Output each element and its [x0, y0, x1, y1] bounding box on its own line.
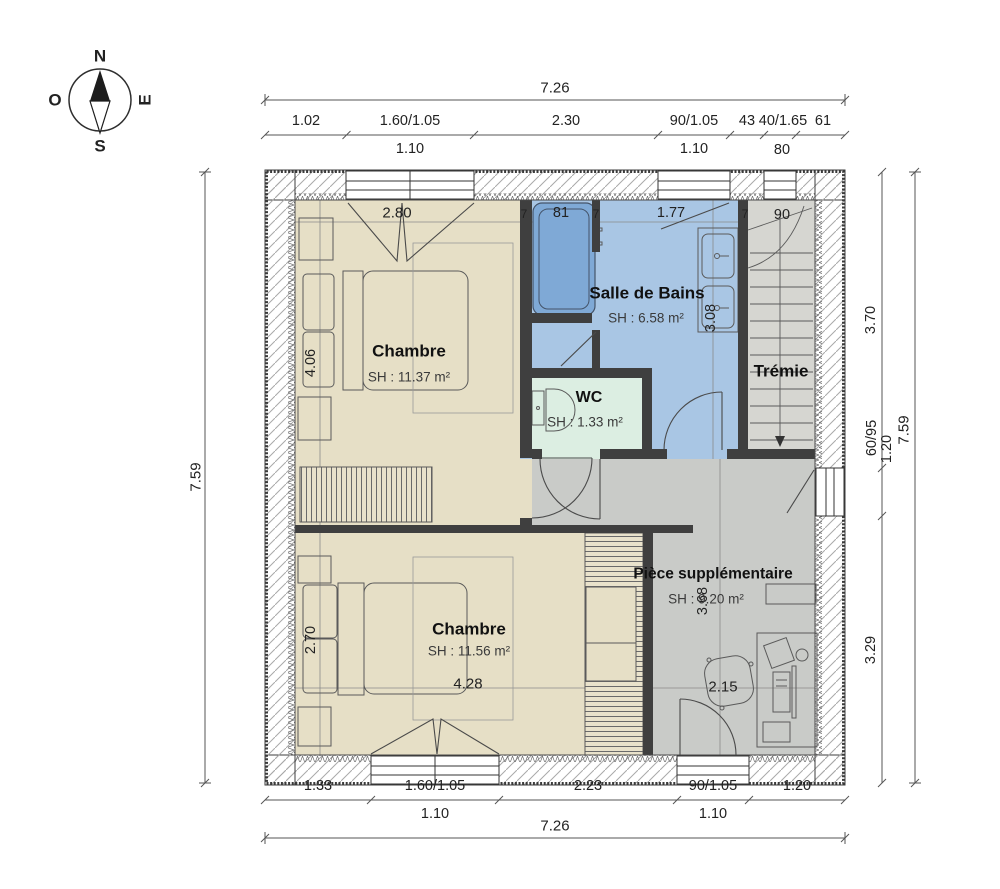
dim-top-2b: 1.10: [396, 142, 424, 157]
dim-left-total: 7.59: [189, 462, 204, 491]
shelf-icon: [300, 467, 432, 522]
dim-top-6: 40/1.65: [759, 114, 807, 129]
dim-right-2: 60/95: [865, 420, 880, 456]
room-bath-area: SH : 6.58 m²: [608, 311, 684, 325]
room-wc-area: SH : 1.33 m²: [547, 415, 623, 429]
dim-chambre2-height: 2.70: [304, 626, 319, 654]
room-chambre1-area: SH : 11.37 m²: [368, 370, 450, 384]
compass-icon: [69, 69, 131, 133]
dim-right-2b: 1.20: [880, 435, 895, 463]
room-chambre2-area: SH : 11.56 m²: [428, 644, 510, 658]
dim-right-total: 7.59: [897, 415, 912, 444]
dim-bottom-5: 1.20: [783, 779, 811, 794]
dim-bottom-3: 2.23: [574, 779, 602, 794]
floor-plan-drawing: [0, 0, 1000, 889]
dim-top-2: 1.60/1.05: [380, 114, 440, 129]
floor-plan-canvas: N O E S 7.26 1.02 1.60/1.05 2.30 90/1.05…: [0, 0, 1000, 889]
dim-bath-width: 1.77: [657, 206, 685, 221]
dim-bottom-2: 1.60/1.05: [405, 779, 465, 794]
dim-bottom-4b: 1.10: [699, 807, 727, 822]
dim-top-5: 43: [739, 114, 755, 129]
dim-bottom-1: 1.33: [304, 779, 332, 794]
dim-bottom-4: 90/1.05: [689, 779, 737, 794]
dim-tub-width: 81: [553, 206, 569, 221]
room-bath-name: Salle de Bains: [589, 285, 704, 302]
dim-right-3: 3.29: [864, 636, 879, 664]
dim-chambre2-width: 4.28: [453, 677, 482, 692]
dim-top-total: 7.26: [540, 81, 569, 96]
room-chambre1-name: Chambre: [372, 343, 446, 360]
room-chambre2-name: Chambre: [432, 621, 506, 638]
dim-wall-2: 7: [593, 208, 600, 220]
dim-top-4b: 1.10: [680, 142, 708, 157]
dim-bottom-2b: 1.10: [421, 807, 449, 822]
dim-top-6b: 80: [774, 143, 790, 158]
compass-south: S: [94, 138, 105, 155]
dim-top-4: 90/1.05: [670, 114, 718, 129]
dim-chambre1-width: 2.80: [382, 206, 411, 221]
dim-chambre1-height: 4.06: [304, 349, 319, 377]
room-suppl-area: SH : 9.20 m²: [668, 592, 744, 606]
dim-wall-1: 7: [521, 208, 528, 220]
dim-bottom-total: 7.26: [540, 819, 569, 834]
compass-north: N: [94, 48, 106, 65]
dim-suppl-width: 2.15: [708, 680, 737, 695]
room-suppl-name: Pièce supplémentaire: [633, 566, 792, 582]
compass-east: E: [137, 94, 154, 105]
room-wc-name: WC: [576, 390, 603, 406]
dim-top-7: 61: [815, 114, 831, 129]
dim-bath-height: 3.08: [704, 304, 719, 332]
dim-right-1: 3.70: [864, 306, 879, 334]
compass-west: O: [48, 92, 61, 109]
room-tremie-name: Trémie: [754, 363, 809, 380]
dim-wall-3: 7: [742, 208, 749, 220]
dim-top-1: 1.02: [292, 114, 320, 129]
dim-top-3: 2.30: [552, 114, 580, 129]
dim-tremie-width: 90: [774, 208, 790, 223]
